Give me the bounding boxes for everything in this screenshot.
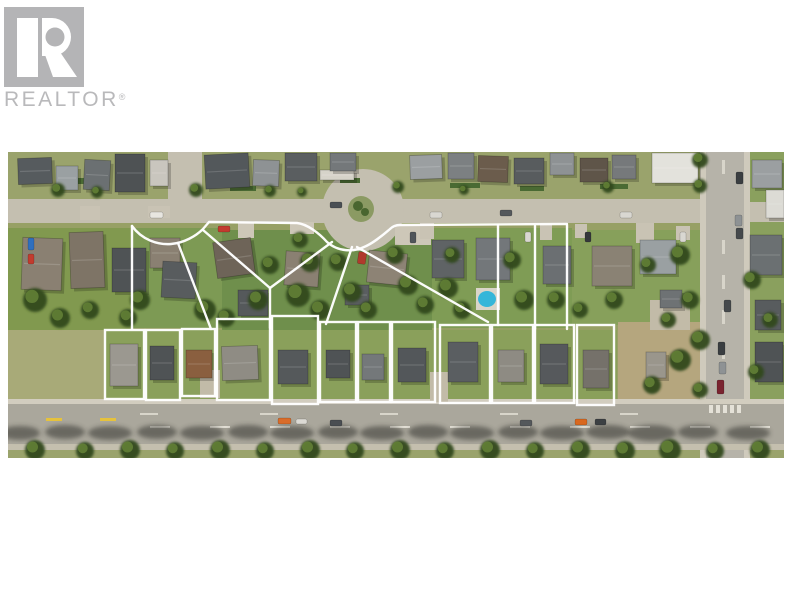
realtor-logo: REALTOR® [4, 7, 264, 110]
registered-mark: ® [119, 92, 126, 102]
realtor-logo-text: REALTOR® [4, 89, 264, 110]
page: { "branding": { "logo_text": "REALTOR", … [0, 0, 792, 612]
aerial-scene [8, 152, 784, 458]
realtor-logo-icon [4, 7, 84, 87]
aerial-photo [8, 152, 784, 458]
